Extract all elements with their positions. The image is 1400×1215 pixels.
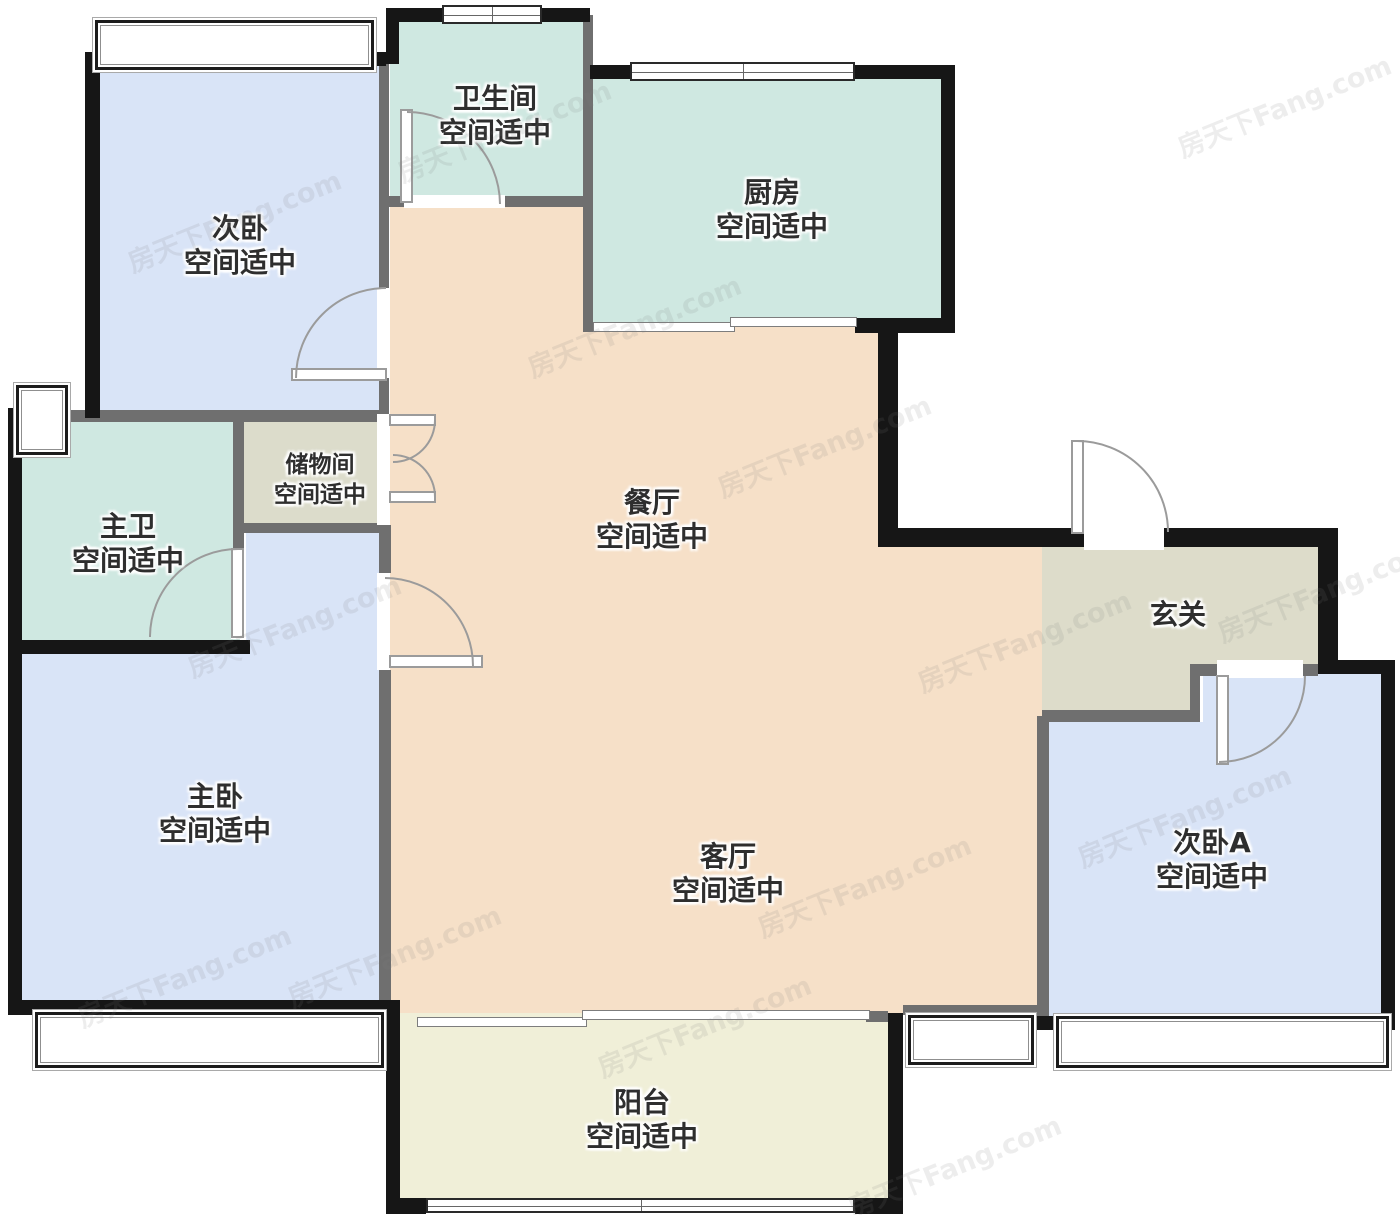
room-status: 空间适中: [72, 544, 184, 578]
wall-bedroomA-left: [1037, 716, 1049, 1016]
wall-balcony-right: [888, 1013, 903, 1212]
label-storage: 储物间 空间适中: [274, 450, 366, 510]
wall-central-mid: [379, 525, 391, 573]
label-master-bedroom: 主卧 空间适中: [159, 780, 271, 848]
bay-window-bedroom2: [95, 20, 374, 70]
wall-living-bottom-right: [903, 1005, 1042, 1015]
wall-balcony-bottom-right: [855, 1198, 903, 1214]
room-name: 厨房: [716, 176, 828, 210]
room-name: 客厅: [672, 840, 784, 874]
balcony-railing-window: [426, 1198, 855, 1213]
wall-hall-step: [1190, 664, 1200, 722]
kitchen-sliding-window-right: [730, 317, 857, 327]
window-bathroom: [442, 5, 542, 24]
watermark: 房天下Fang.com: [1171, 44, 1397, 165]
room-status: 空间适中: [439, 116, 551, 150]
label-secondary-bedroom-a: 次卧A 空间适中: [1156, 826, 1268, 894]
bay-window-bedroomA: [1056, 1016, 1389, 1068]
label-dining: 餐厅 空间适中: [596, 486, 708, 554]
wall-right-lower: [1381, 660, 1395, 1020]
room-status: 空间适中: [596, 520, 708, 554]
bay-window-masterbath: [16, 385, 68, 455]
wall-entry-top-right: [1164, 528, 1338, 547]
room-name: 阳台: [586, 1086, 698, 1120]
door-opening-masterbath: [231, 549, 245, 639]
door-opening-storage: [377, 414, 390, 525]
room-name: 主卫: [72, 510, 184, 544]
label-master-bathroom: 主卫 空间适中: [72, 510, 184, 578]
door-entrance: [1072, 441, 1168, 533]
bay-window-masterbed: [35, 1012, 384, 1068]
window-living-small: [908, 1015, 1034, 1065]
door-opening-bathroom: [404, 195, 505, 208]
wall-right-upper: [1318, 528, 1338, 674]
balcony-sliding-door-right: [582, 1010, 870, 1020]
door-opening-bedroom2: [377, 288, 390, 378]
room-status: 空间适中: [716, 210, 828, 244]
wall-storage-bottom: [240, 523, 386, 533]
wall-bathroom-kitchen-divider: [583, 15, 593, 332]
room-fill-segment: [590, 327, 884, 1013]
wall-kitchen-right: [941, 65, 955, 332]
label-balcony: 阳台 空间适中: [586, 1086, 698, 1154]
room-status: 空间适中: [586, 1120, 698, 1154]
room-status: 空间适中: [159, 814, 271, 848]
room-name: 次卧A: [1156, 826, 1268, 860]
room-status: 空间适中: [184, 246, 296, 280]
room-name: 主卧: [159, 780, 271, 814]
label-kitchen: 厨房 空间适中: [716, 176, 828, 244]
wall-kitchen-bottom: [855, 318, 955, 333]
wall-left-lower: [8, 408, 22, 1015]
floor-plan: 次卧 空间适中 卫生间 空间适中 厨房 空间适中 主卫 空间适中 储物间 空间适…: [0, 0, 1400, 1215]
room-name: 餐厅: [596, 486, 708, 520]
wall-hall-bottom: [1042, 710, 1192, 722]
wall-balcony-left: [386, 1013, 400, 1203]
room-fill-segment: [390, 207, 590, 1013]
label-entry-hall: 玄关: [1150, 598, 1206, 632]
wall-bedroom2-left: [85, 52, 100, 418]
room-name: 储物间: [274, 450, 366, 480]
label-secondary-bedroom: 次卧 空间适中: [184, 212, 296, 280]
door-opening-masterbed: [377, 573, 390, 670]
wall-bedroomA-top-right: [1303, 664, 1318, 676]
door-arc: [1077, 441, 1168, 532]
wall-notch-vertical: [878, 318, 898, 546]
wall-bathroom-left-stub: [386, 8, 399, 64]
wall-bathroom-bottom-right: [503, 196, 590, 207]
wall-entry-top-left: [878, 528, 1084, 547]
room-name: 玄关: [1150, 598, 1206, 632]
wall-masterbath-bottom: [8, 640, 250, 654]
door-opening-entrance: [1084, 524, 1164, 550]
room-status: 空间适中: [672, 874, 784, 908]
door-opening-bedroomA: [1217, 660, 1303, 678]
room-status: 空间适中: [274, 480, 366, 510]
kitchen-sliding-window-left: [593, 322, 735, 332]
wall-central-lower: [379, 670, 391, 1013]
wall-bedroom2-right-upper: [379, 55, 389, 288]
label-living: 客厅 空间适中: [672, 840, 784, 908]
door-leaf: [1072, 441, 1083, 533]
wall-bedroom2-right-lower: [379, 378, 389, 414]
balcony-sliding-door-left: [417, 1017, 587, 1027]
room-name: 次卧: [184, 212, 296, 246]
room-name: 卫生间: [439, 82, 551, 116]
window-kitchen-top: [630, 62, 855, 81]
room-status: 空间适中: [1156, 860, 1268, 894]
label-bathroom: 卫生间 空间适中: [439, 82, 551, 150]
wall-bedroomA-top-left: [1200, 664, 1217, 676]
wall-under-bedroom2: [20, 410, 386, 422]
room-fill-segment: [884, 546, 1042, 1013]
